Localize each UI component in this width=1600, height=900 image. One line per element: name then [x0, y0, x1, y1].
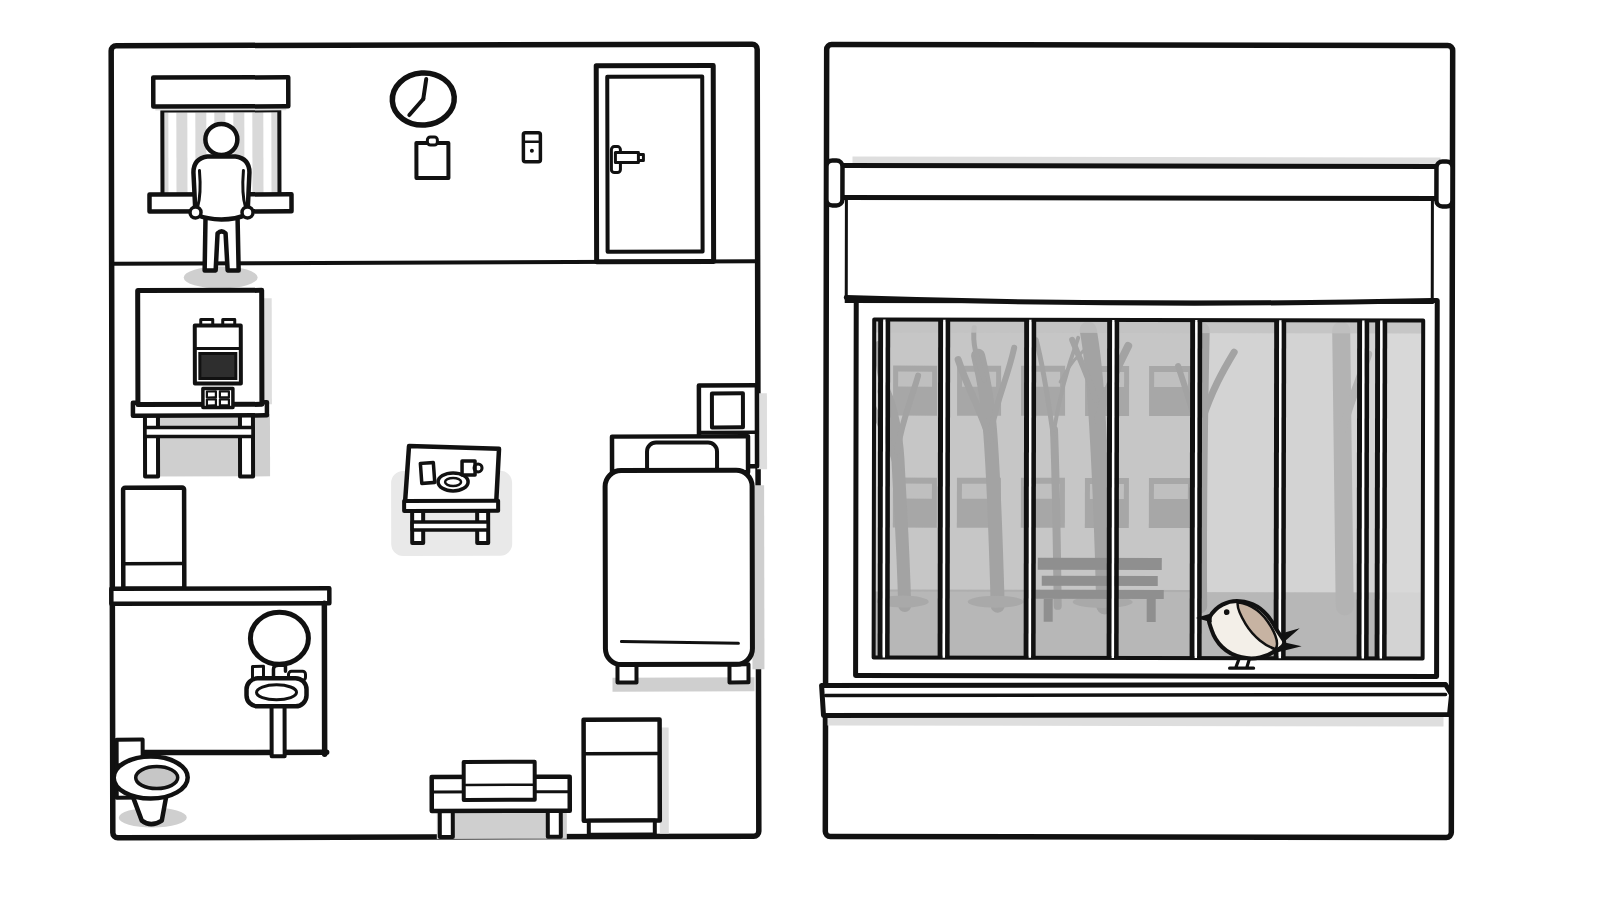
bar — [1190, 320, 1203, 658]
cabinet-plinth — [589, 821, 655, 835]
clipboard[interactable] — [416, 137, 448, 178]
bed[interactable] — [605, 436, 753, 682]
sink-pedestal — [272, 704, 285, 756]
blanket-fold — [621, 641, 738, 643]
machine-screen — [200, 353, 236, 378]
window-jamb-reveal — [1386, 320, 1424, 658]
wall-clock[interactable] — [390, 71, 456, 127]
sill-slab — [822, 683, 1452, 716]
person-hand — [242, 207, 253, 218]
tray-table[interactable] — [391, 446, 512, 556]
door[interactable] — [596, 65, 713, 261]
game-screen — [0, 0, 1600, 900]
table-leg — [240, 414, 253, 476]
person-shadow — [184, 266, 258, 288]
table-leg — [145, 415, 158, 477]
mattress[interactable] — [605, 470, 752, 664]
tray-rail — [412, 522, 488, 530]
bed-foot — [617, 665, 636, 683]
bench-leg — [548, 811, 561, 837]
bar — [1274, 320, 1287, 658]
door-handle[interactable] — [615, 153, 643, 163]
photo-frame[interactable] — [712, 393, 743, 427]
bathroom-wall-top — [111, 588, 329, 603]
outside-scene — [868, 320, 1424, 659]
roller-blind[interactable] — [826, 156, 1452, 303]
towels[interactable] — [464, 762, 535, 800]
room-panel — [110, 44, 768, 839]
fridge[interactable] — [123, 488, 184, 589]
bar — [1107, 320, 1120, 658]
cabinet[interactable] — [584, 720, 669, 835]
cabinet-body — [584, 720, 660, 821]
bird-eye — [1224, 609, 1230, 615]
window-panel — [821, 44, 1452, 837]
bar — [878, 320, 891, 658]
glass[interactable] — [420, 463, 434, 484]
bench-leg — [440, 811, 453, 837]
bar — [938, 320, 951, 658]
toilet-water — [136, 767, 178, 789]
bar — [1357, 320, 1370, 658]
scene-canvas — [0, 0, 1600, 900]
person-head — [205, 124, 237, 155]
bar — [1375, 320, 1388, 658]
blind-tube — [838, 165, 1440, 198]
light-switch[interactable] — [523, 133, 540, 162]
person-hand — [190, 207, 201, 218]
bed-foot — [729, 664, 748, 682]
blind-end-cap — [1436, 162, 1452, 207]
bar — [1024, 320, 1037, 658]
blind-pelmet[interactable] — [153, 77, 288, 106]
mirror[interactable] — [250, 612, 308, 664]
clipboard-clip — [427, 137, 437, 145]
blind-end-cap — [826, 160, 842, 205]
food-machine-table[interactable] — [133, 290, 272, 476]
window-sill-outer — [822, 683, 1452, 726]
blind-fabric[interactable] — [846, 197, 1432, 302]
table-rail — [145, 427, 253, 436]
